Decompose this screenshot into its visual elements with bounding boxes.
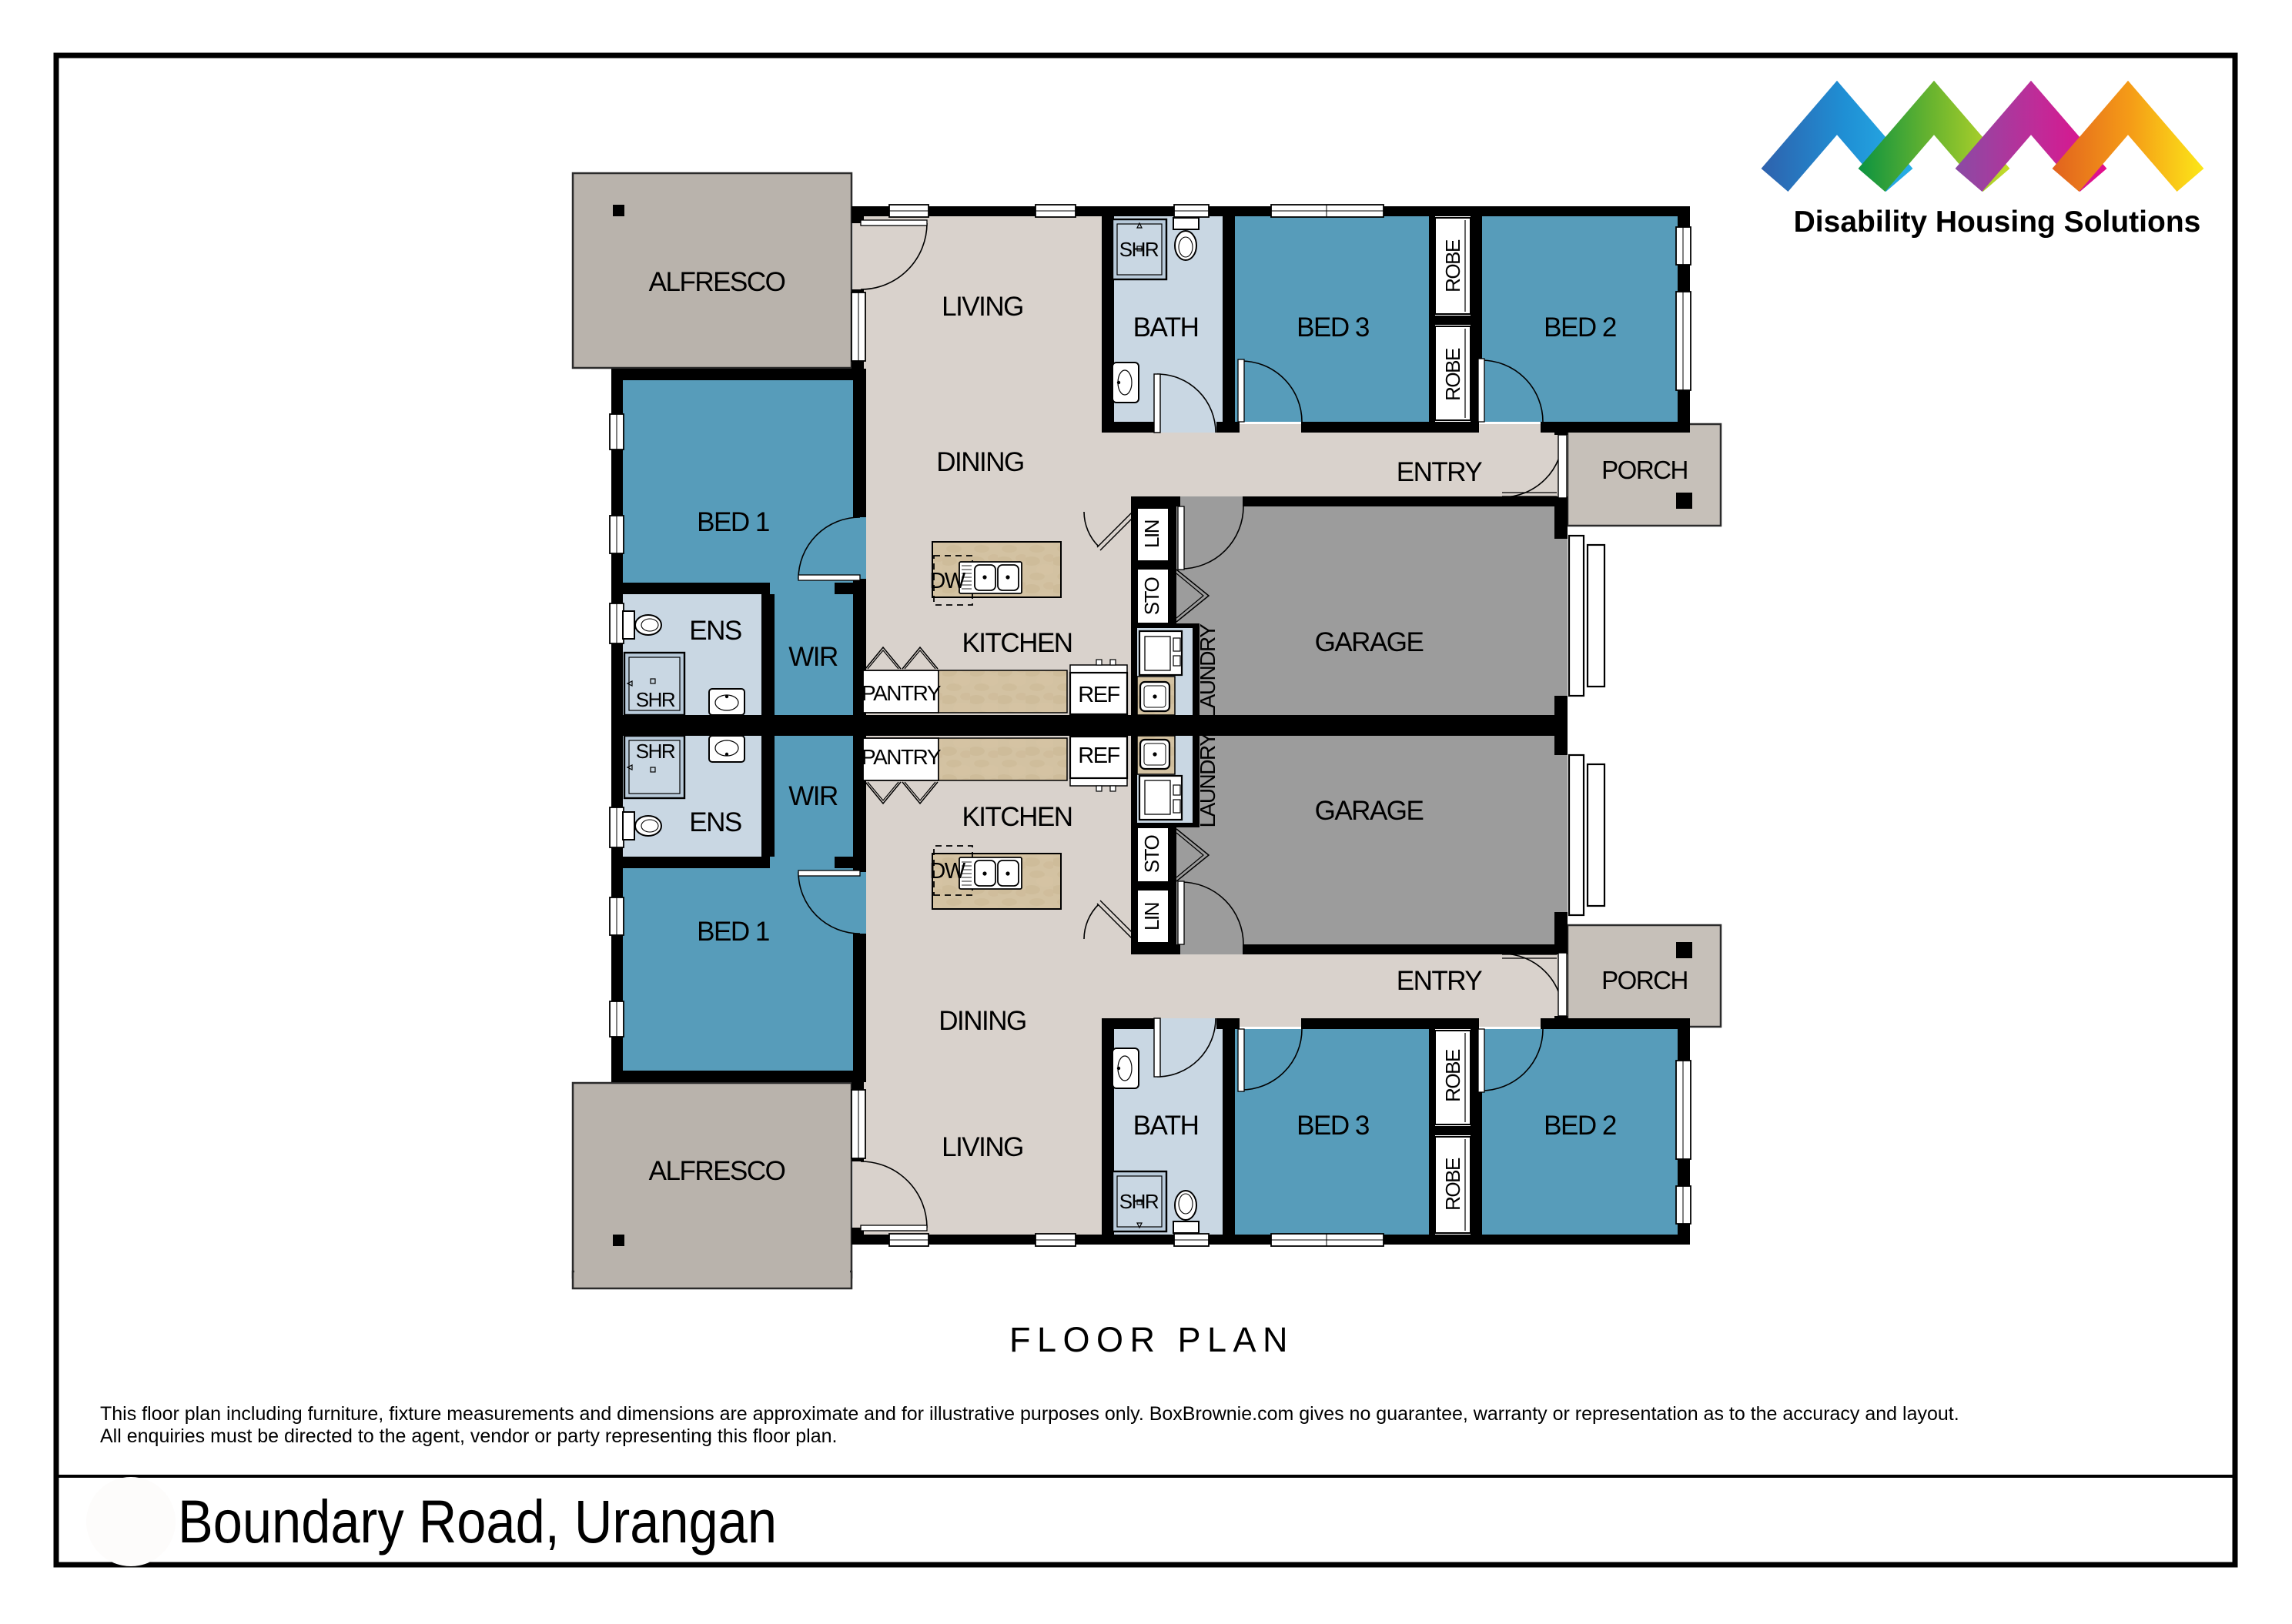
svg-text:LIVING: LIVING [942,1132,1023,1162]
svg-text:DW: DW [929,859,965,884]
svg-text:ROBE: ROBE [1441,1158,1464,1211]
svg-text:ENS: ENS [689,616,741,646]
svg-text:BED 1: BED 1 [697,507,769,537]
svg-text:PANTRY: PANTRY [862,745,942,769]
svg-text:STO: STO [1140,577,1163,615]
svg-text:ENTRY: ENTRY [1397,966,1483,996]
svg-text:BED 2: BED 2 [1544,312,1616,343]
svg-text:ROBE: ROBE [1441,348,1464,401]
svg-text:FLOOR PLAN: FLOOR PLAN [1009,1320,1294,1359]
svg-text:GARAGE: GARAGE [1315,796,1424,826]
svg-text:ENS: ENS [689,807,741,837]
svg-text:LIVING: LIVING [942,292,1023,322]
svg-text:BED 3: BED 3 [1297,312,1369,343]
svg-text:This floor plan including furn: This floor plan including furniture, fix… [100,1403,1959,1425]
svg-text:BATH: BATH [1133,1111,1199,1141]
svg-text:LIN: LIN [1140,903,1163,931]
svg-text:SHR: SHR [636,740,675,763]
svg-text:KITCHEN: KITCHEN [962,802,1072,832]
svg-text:STO: STO [1140,835,1163,873]
svg-text:All enquiries must be directed: All enquiries must be directed to the ag… [100,1425,837,1447]
svg-text:SHR: SHR [636,688,675,711]
svg-text:Boundary Road, Urangan: Boundary Road, Urangan [178,1487,777,1555]
svg-text:SHR: SHR [1119,238,1159,261]
svg-text:KITCHEN: KITCHEN [962,628,1072,658]
svg-text:PORCH: PORCH [1601,966,1688,994]
svg-text:REF: REF [1078,683,1119,707]
svg-text:GARAGE: GARAGE [1315,627,1424,657]
svg-text:DW: DW [929,569,965,593]
svg-text:SHR: SHR [1119,1190,1159,1213]
svg-text:WIR: WIR [788,781,838,811]
svg-text:ALFRESCO: ALFRESCO [649,1156,785,1186]
svg-text:BED 2: BED 2 [1544,1111,1616,1141]
svg-text:LAUNDRY: LAUNDRY [1196,623,1220,720]
svg-text:ROBE: ROBE [1441,239,1464,292]
svg-text:BATH: BATH [1133,312,1199,343]
svg-text:DINING: DINING [936,447,1024,477]
svg-text:BED 1: BED 1 [697,917,769,947]
svg-text:PORCH: PORCH [1601,456,1688,484]
svg-text:LIN: LIN [1140,520,1163,548]
svg-text:REF: REF [1078,743,1119,768]
svg-text:WIR: WIR [788,642,838,672]
svg-text:BED 3: BED 3 [1297,1111,1369,1141]
svg-text:ROBE: ROBE [1441,1049,1464,1102]
svg-text:ENTRY: ENTRY [1397,457,1483,487]
svg-text:Disability Housing Solutions: Disability Housing Solutions [1794,206,2201,239]
svg-text:LAUNDRY: LAUNDRY [1196,732,1220,828]
svg-text:PANTRY: PANTRY [862,681,942,705]
svg-text:DINING: DINING [939,1006,1026,1036]
svg-text:ALFRESCO: ALFRESCO [649,267,785,297]
